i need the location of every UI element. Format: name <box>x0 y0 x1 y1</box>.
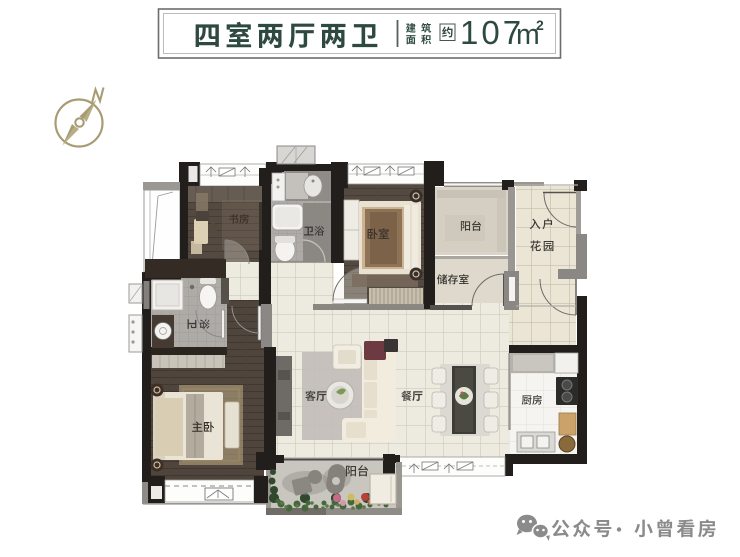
svg-text:107: 107 <box>460 14 524 51</box>
svg-text:2: 2 <box>536 17 544 33</box>
